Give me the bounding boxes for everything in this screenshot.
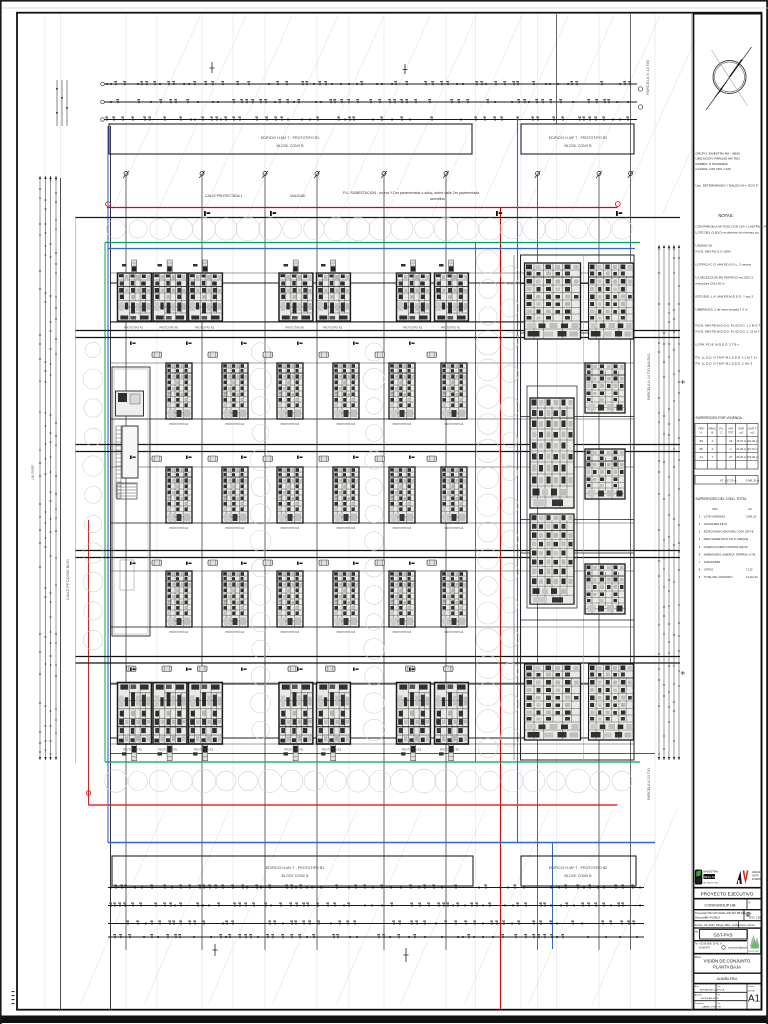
svg-text:AREA VERDE P.E.M. P.D.D. P: AREA VERDE P.E.M. P.D.D. PARQUE xyxy=(704,537,749,541)
svg-text:UMBRALES: 2 de estos arcada T: UMBRALES: 2 de estos arcada T 2 m xyxy=(696,308,748,312)
svg-text:PROTOTIPO R1: PROTOTIPO R1 xyxy=(284,748,304,752)
svg-text:+52 55 8000 10 PQ. A: +52 55 8000 10 PQ. A xyxy=(699,943,722,946)
svg-text:47: 47 xyxy=(720,479,723,483)
svg-text:Fir:: Fir: xyxy=(718,1002,722,1005)
svg-text:Uso. DETERMINADO Y BALDIO AH -: Uso. DETERMINADO Y BALDIO AH - ECO P xyxy=(696,184,758,188)
svg-text:PROTOTIPO A1: PROTOTIPO A1 xyxy=(337,422,357,426)
svg-text:A1: A1 xyxy=(700,455,704,459)
svg-text:241.20 m: 241.20 m xyxy=(747,439,759,443)
svg-text:INVERSO: INVERSO xyxy=(752,878,763,881)
svg-text:P.U. SUBESTACION - nueva Y-Dm: P.U. SUBESTACION - nueva Y-Dm pavimentad… xyxy=(343,191,479,195)
svg-text:PROTOTIPO R1: PROTOTIPO R1 xyxy=(124,326,144,330)
svg-text:m2: m2 xyxy=(748,507,752,511)
svg-text:A PLA: A PLA xyxy=(748,990,755,993)
svg-text:VIALIDADES P.E.M.: VIALIDADES P.E.M. xyxy=(704,522,728,526)
svg-text:CASETA ACCESO CONTROL EQUIP: CASETA ACCESO CONTROL EQUIP. xyxy=(704,545,748,549)
svg-text:VIALIDAD: VIALIDAD xyxy=(290,194,306,198)
svg-text:LOTIFICA C.O. MIN P.D.S.O.L. 2: LOTIFICA C.O. MIN P.D.S.O.L. 2 metros xyxy=(696,263,752,267)
svg-text:GST-PVS: GST-PVS xyxy=(713,933,732,938)
svg-text:PROTOTIPO A1: PROTOTIPO A1 xyxy=(170,422,190,426)
svg-text:USO: USO xyxy=(712,507,718,511)
svg-text:CONVGROUP HB: CONVGROUP HB xyxy=(704,904,736,908)
svg-text:P.A. LL.D.D. O.T.M.P. M.L.D.D.: P.A. LL.D.D. O.T.M.P. M.L.D.D.D. 1 1 M.T… xyxy=(696,356,758,360)
svg-text:UBICACION: PARQUE MX TED: UBICACION: PARQUE MX TED xyxy=(696,157,741,161)
svg-text:PROTOTIPO A1: PROTOTIPO A1 xyxy=(170,630,190,634)
svg-text:OTROS: OTROS xyxy=(704,567,713,571)
svg-text:MX GROUP SA: MX GROUP SA xyxy=(704,882,719,885)
svg-text:P.A. LL.D.D. O.T.M.P. M.L.D.D.: P.A. LL.D.D. O.T.M.P. M.L.D.D.D. 2. M+ 2 xyxy=(696,362,753,366)
svg-text:PROTOTIPO A1: PROTOTIPO A1 xyxy=(393,630,413,634)
svg-text:B: B xyxy=(711,431,713,435)
svg-text:PROTOTIPO A1: PROTOTIPO A1 xyxy=(445,526,465,530)
svg-text:34.20 m: 34.20 m xyxy=(736,455,746,459)
svg-text:RUMBO: H HACIENDA: RUMBO: H HACIENDA xyxy=(696,162,729,166)
svg-text:14,441.20: 14,441.20 xyxy=(746,575,758,579)
svg-text:PROTOTIPO R1: PROTOTIPO R1 xyxy=(158,748,178,752)
svg-text:EDIFICIO H-MF T - PROTOTIPO R2: EDIFICIO H-MF T - PROTOTIPO R2 xyxy=(549,136,608,140)
svg-text:PROYECTO EJECUTIVO: PROYECTO EJECUTIVO xyxy=(701,892,754,897)
svg-text:FRAC: FRAC xyxy=(709,427,716,431)
svg-text:LIM PROP: LIM PROP xyxy=(31,465,35,480)
svg-text:ESC 1:500: ESC 1:500 xyxy=(750,916,763,920)
svg-text:71.20: 71.20 xyxy=(746,567,753,571)
svg-text:CLAVES: C20 CPU J 120: CLAVES: C20 CPU J 120 xyxy=(696,167,731,171)
svg-text:55-68 MTY: 55-68 MTY xyxy=(699,948,711,950)
svg-text:BLOCK CONV B: BLOCK CONV B xyxy=(565,874,593,878)
svg-text:P.O.E. MIN P.D.S.O. 80%.: P.O.E. MIN P.D.S.O. 80%. xyxy=(696,250,732,254)
svg-text:PROTOTIPO R1: PROTOTIPO R1 xyxy=(322,748,342,752)
svg-text:PROTOTIPO A1: PROTOTIPO A1 xyxy=(445,630,465,634)
svg-text:A1: A1 xyxy=(748,994,760,1005)
svg-text:CON PARCELA 09 TODL CON 2LP +: CON PARCELA 09 TODL CON 2LP + LASTRUE. P… xyxy=(696,225,768,229)
svg-text:21.20 m: 21.20 m xyxy=(736,447,746,451)
svg-text:AMENIDADES: ALBERCA, TERRAZA: AMENIDADES: ALBERCA, TERRAZA, GYM xyxy=(704,552,755,556)
svg-text:LOTE NACIONAL AVD MX PB DEL SO: LOTE NACIONAL AVD MX PB DEL SOL xyxy=(705,911,752,915)
svg-text:B2: B2 xyxy=(700,447,704,451)
svg-text:PROTOTIPO A1: PROTOTIPO A1 xyxy=(393,422,413,426)
svg-text:B1: B1 xyxy=(700,439,704,443)
svg-text:ALBAÑILERIA: ALBAÑILERIA xyxy=(717,976,738,981)
svg-text:BLOCK CONV B: BLOCK CONV B xyxy=(277,144,305,148)
svg-text:Proyectó:: Proyectó: xyxy=(695,1002,705,1005)
svg-text:CABRILL PINO TM: CABRILL PINO TM xyxy=(702,1006,721,1009)
svg-text:Clave:: Clave: xyxy=(748,986,755,988)
svg-text:PROTOTIPO A1: PROTOTIPO A1 xyxy=(281,630,301,634)
svg-text:VISIÓN DE CONJUNTO: VISIÓN DE CONJUNTO xyxy=(704,959,751,964)
svg-text:ESTUDIO: L.A. MIN P.E.M.D.D.O.: ESTUDIO: L.A. MIN P.E.M.D.D.O. Y acc 2 xyxy=(696,295,754,299)
svg-text:Fecha: JUL 2023: Fecha: JUL 2023 xyxy=(695,923,715,927)
svg-text:P.O.E. MIN P.E.M.D.D.O. P.U.E: P.O.E. MIN P.E.M.D.D.O. P.U.E.D.O. 2. 21… xyxy=(696,330,761,334)
svg-text:CALLE PROYECTADA 1: CALLE PROYECTADA 1 xyxy=(205,194,243,198)
svg-text:PROTOTIPO R1: PROTOTIPO R1 xyxy=(123,748,143,752)
svg-text:16.70 m: 16.70 m xyxy=(736,439,746,443)
svg-text:16: 16 xyxy=(729,439,732,443)
svg-text:CALLE PP DO BIG BLVD: CALLE PP DO BIG BLVD xyxy=(66,559,70,600)
svg-text:ESTACIONAM. ADICIONAL CONV.: ESTACIONAM. ADICIONAL CONV. DE P.E. xyxy=(704,530,755,534)
svg-text:LOTAL P.O.E. M.D.D.O. 2 T B +: LOTAL P.O.E. M.D.D.O. 2 T B + xyxy=(696,343,740,347)
svg-text:PROTOTIPO A1: PROTOTIPO A1 xyxy=(226,526,246,530)
svg-text:P.V.: P.V. xyxy=(719,427,724,431)
svg-text:PROTOTIPO A1: PROTOTIPO A1 xyxy=(226,422,246,426)
svg-text:P.O.E. MIN P.E.M.D.D.O. P.U.E: P.O.E. MIN P.E.M.D.D.O. P.U.E.D.O. 1 1 M… xyxy=(696,324,761,328)
svg-text:PROTOTIPO R1: PROTOTIPO R1 xyxy=(403,326,423,330)
svg-text:m2: m2 xyxy=(751,431,755,435)
svg-text:SUPERFICIES DEL CONJ. TOTAL: SUPERFICIES DEL CONJ. TOTAL xyxy=(696,497,747,501)
svg-text:SUPERFICIES POR VIVIENDA: SUPERFICIES POR VIVIENDA xyxy=(696,416,743,420)
svg-text:PROTOTIPO A1: PROTOTIPO A1 xyxy=(337,526,357,530)
svg-text:PROTOTIPO A1: PROTOTIPO A1 xyxy=(393,526,413,530)
svg-text:EDIFICIO H-MX T - PROTOTIPO R1: EDIFICIO H-MX T - PROTOTIPO R1 xyxy=(261,136,320,140)
svg-text:TOTAL DEL CONJUNTO: TOTAL DEL CONJUNTO xyxy=(704,575,733,579)
svg-text:PROTOTIPO R1: PROTOTIPO R1 xyxy=(323,326,343,330)
svg-text:PROTOTIPO A1: PROTOTIPO A1 xyxy=(226,630,246,634)
svg-text:Fir:: Fir: xyxy=(718,993,722,996)
svg-text:3,941.20 m: 3,941.20 m xyxy=(746,479,760,483)
svg-text:MX PUEBLO: MX PUEBLO xyxy=(705,916,720,920)
svg-text:EDIFICIO H-MF T - PROTOTIPO B2: EDIFICIO H-MF T - PROTOTIPO B2 xyxy=(549,866,607,870)
svg-text:TIPO: TIPO xyxy=(698,427,704,431)
svg-text:LOTE VIVIENDAS: LOTE VIVIENDAS xyxy=(704,515,726,519)
svg-text:27: 27 xyxy=(729,455,732,459)
svg-text:Rev:: Rev: xyxy=(695,986,700,988)
svg-text:LOTE DEL CUELD recubiertos con: LOTE DEL CUELD recubiertos con terrazo p… xyxy=(696,231,759,235)
svg-text:A: A xyxy=(700,431,702,435)
svg-text:SUP. T: SUP. T xyxy=(748,427,757,431)
svg-text:ANDADORES: ANDADORES xyxy=(704,560,721,564)
svg-text:274.20 m: 274.20 m xyxy=(747,455,759,459)
svg-text:PROTOTIPO R1: PROTOTIPO R1 xyxy=(402,748,422,752)
svg-text:N: N xyxy=(749,901,751,905)
svg-text:PROTOTIPO R1: PROTOTIPO R1 xyxy=(285,326,305,330)
svg-text:LA SELECCION DE PORTICO est C: LA SELECCION DE PORTICO est CDU 2 xyxy=(696,276,754,280)
svg-text:ALEJANDRO CASTILLA: ALEJANDRO CASTILLA xyxy=(700,989,725,992)
svg-text:GRUPO: INVESTRA MX - HB30: GRUPO: INVESTRA MX - HB30 xyxy=(696,152,741,156)
svg-text:BLOCK CONV B: BLOCK CONV B xyxy=(282,874,310,878)
svg-text:INVESTRA: INVESTRA xyxy=(704,870,719,874)
svg-text:PROTOTIPO A1: PROTOTIPO A1 xyxy=(281,422,301,426)
svg-text:PARCELA N 14 T/O BALDIO: PARCELA N 14 T/O BALDIO xyxy=(647,354,651,400)
svg-text:3,941.20: 3,941.20 xyxy=(746,515,757,519)
svg-text:m2: m2 xyxy=(739,431,743,435)
svg-text:PROTOTIPO R1: PROTOTIPO R1 xyxy=(195,326,215,330)
svg-text:UNIDAD 30:: UNIDAD 30: xyxy=(696,244,713,248)
svg-text:PARCELA N 14 T/O: PARCELA N 14 T/O xyxy=(645,60,650,95)
svg-text:GRUPOAVI: GRUPOAVI xyxy=(749,950,760,953)
svg-text:Aprobó:: Aprobó: xyxy=(695,993,703,996)
svg-text:PROTOTIPO A1: PROTOTIPO A1 xyxy=(337,630,357,634)
svg-text:PROTOTIPO A1: PROTOTIPO A1 xyxy=(281,526,301,530)
svg-text:84.70 m: 84.70 m xyxy=(748,447,758,451)
svg-text:NOTAS:: NOTAS: xyxy=(718,213,733,218)
svg-text:REAL ST: REAL ST xyxy=(704,875,716,879)
svg-text:EDIFICIO H-MX T - PROTOTIPO B1: EDIFICIO H-MX T - PROTOTIPO B1 xyxy=(266,866,325,870)
svg-text:No.: No. xyxy=(695,931,699,934)
svg-text:617.20 m: 617.20 m xyxy=(725,479,737,483)
svg-text:estructura CDU 20 m: estructura CDU 20 m xyxy=(696,282,725,286)
svg-text:PROTOTIPO R1: PROTOTIPO R1 xyxy=(194,748,214,752)
svg-text:PROTOTIPO A1: PROTOTIPO A1 xyxy=(445,422,465,426)
svg-text:FELIPE ANGUL B: FELIPE ANGUL B xyxy=(701,997,719,1000)
svg-text:Fir:: Fir: xyxy=(718,985,722,988)
svg-text:SUP.: SUP. xyxy=(738,427,744,431)
svg-text:Plano:: Plano: xyxy=(695,956,702,959)
svg-text:PARCELA N 13 T/O: PARCELA N 13 T/O xyxy=(647,768,651,800)
svg-text:Acot: metros: Acot: metros xyxy=(740,923,755,927)
svg-text:PROTOTIPO R1: PROTOTIPO R1 xyxy=(441,326,461,330)
svg-text:PLANTA BAJA: PLANTA BAJA xyxy=(713,965,741,970)
svg-text:PROTOTIPO R1: PROTOTIPO R1 xyxy=(440,748,460,752)
svg-text:BLOCK CONV B: BLOCK CONV B xyxy=(565,144,593,148)
svg-text:PROTOTIPO R1: PROTOTIPO R1 xyxy=(159,326,179,330)
svg-text:PROTOTIPO A1: PROTOTIPO A1 xyxy=(170,526,190,530)
svg-text:UNI: UNI xyxy=(728,427,733,431)
svg-text:TOT: TOT xyxy=(728,431,734,435)
svg-text:C: C xyxy=(721,431,723,435)
svg-text:acometida: acometida xyxy=(430,197,445,201)
svg-text:Dibujó: ARQ. LAVAD: Dibujó: ARQ. LAVAD xyxy=(716,923,740,927)
